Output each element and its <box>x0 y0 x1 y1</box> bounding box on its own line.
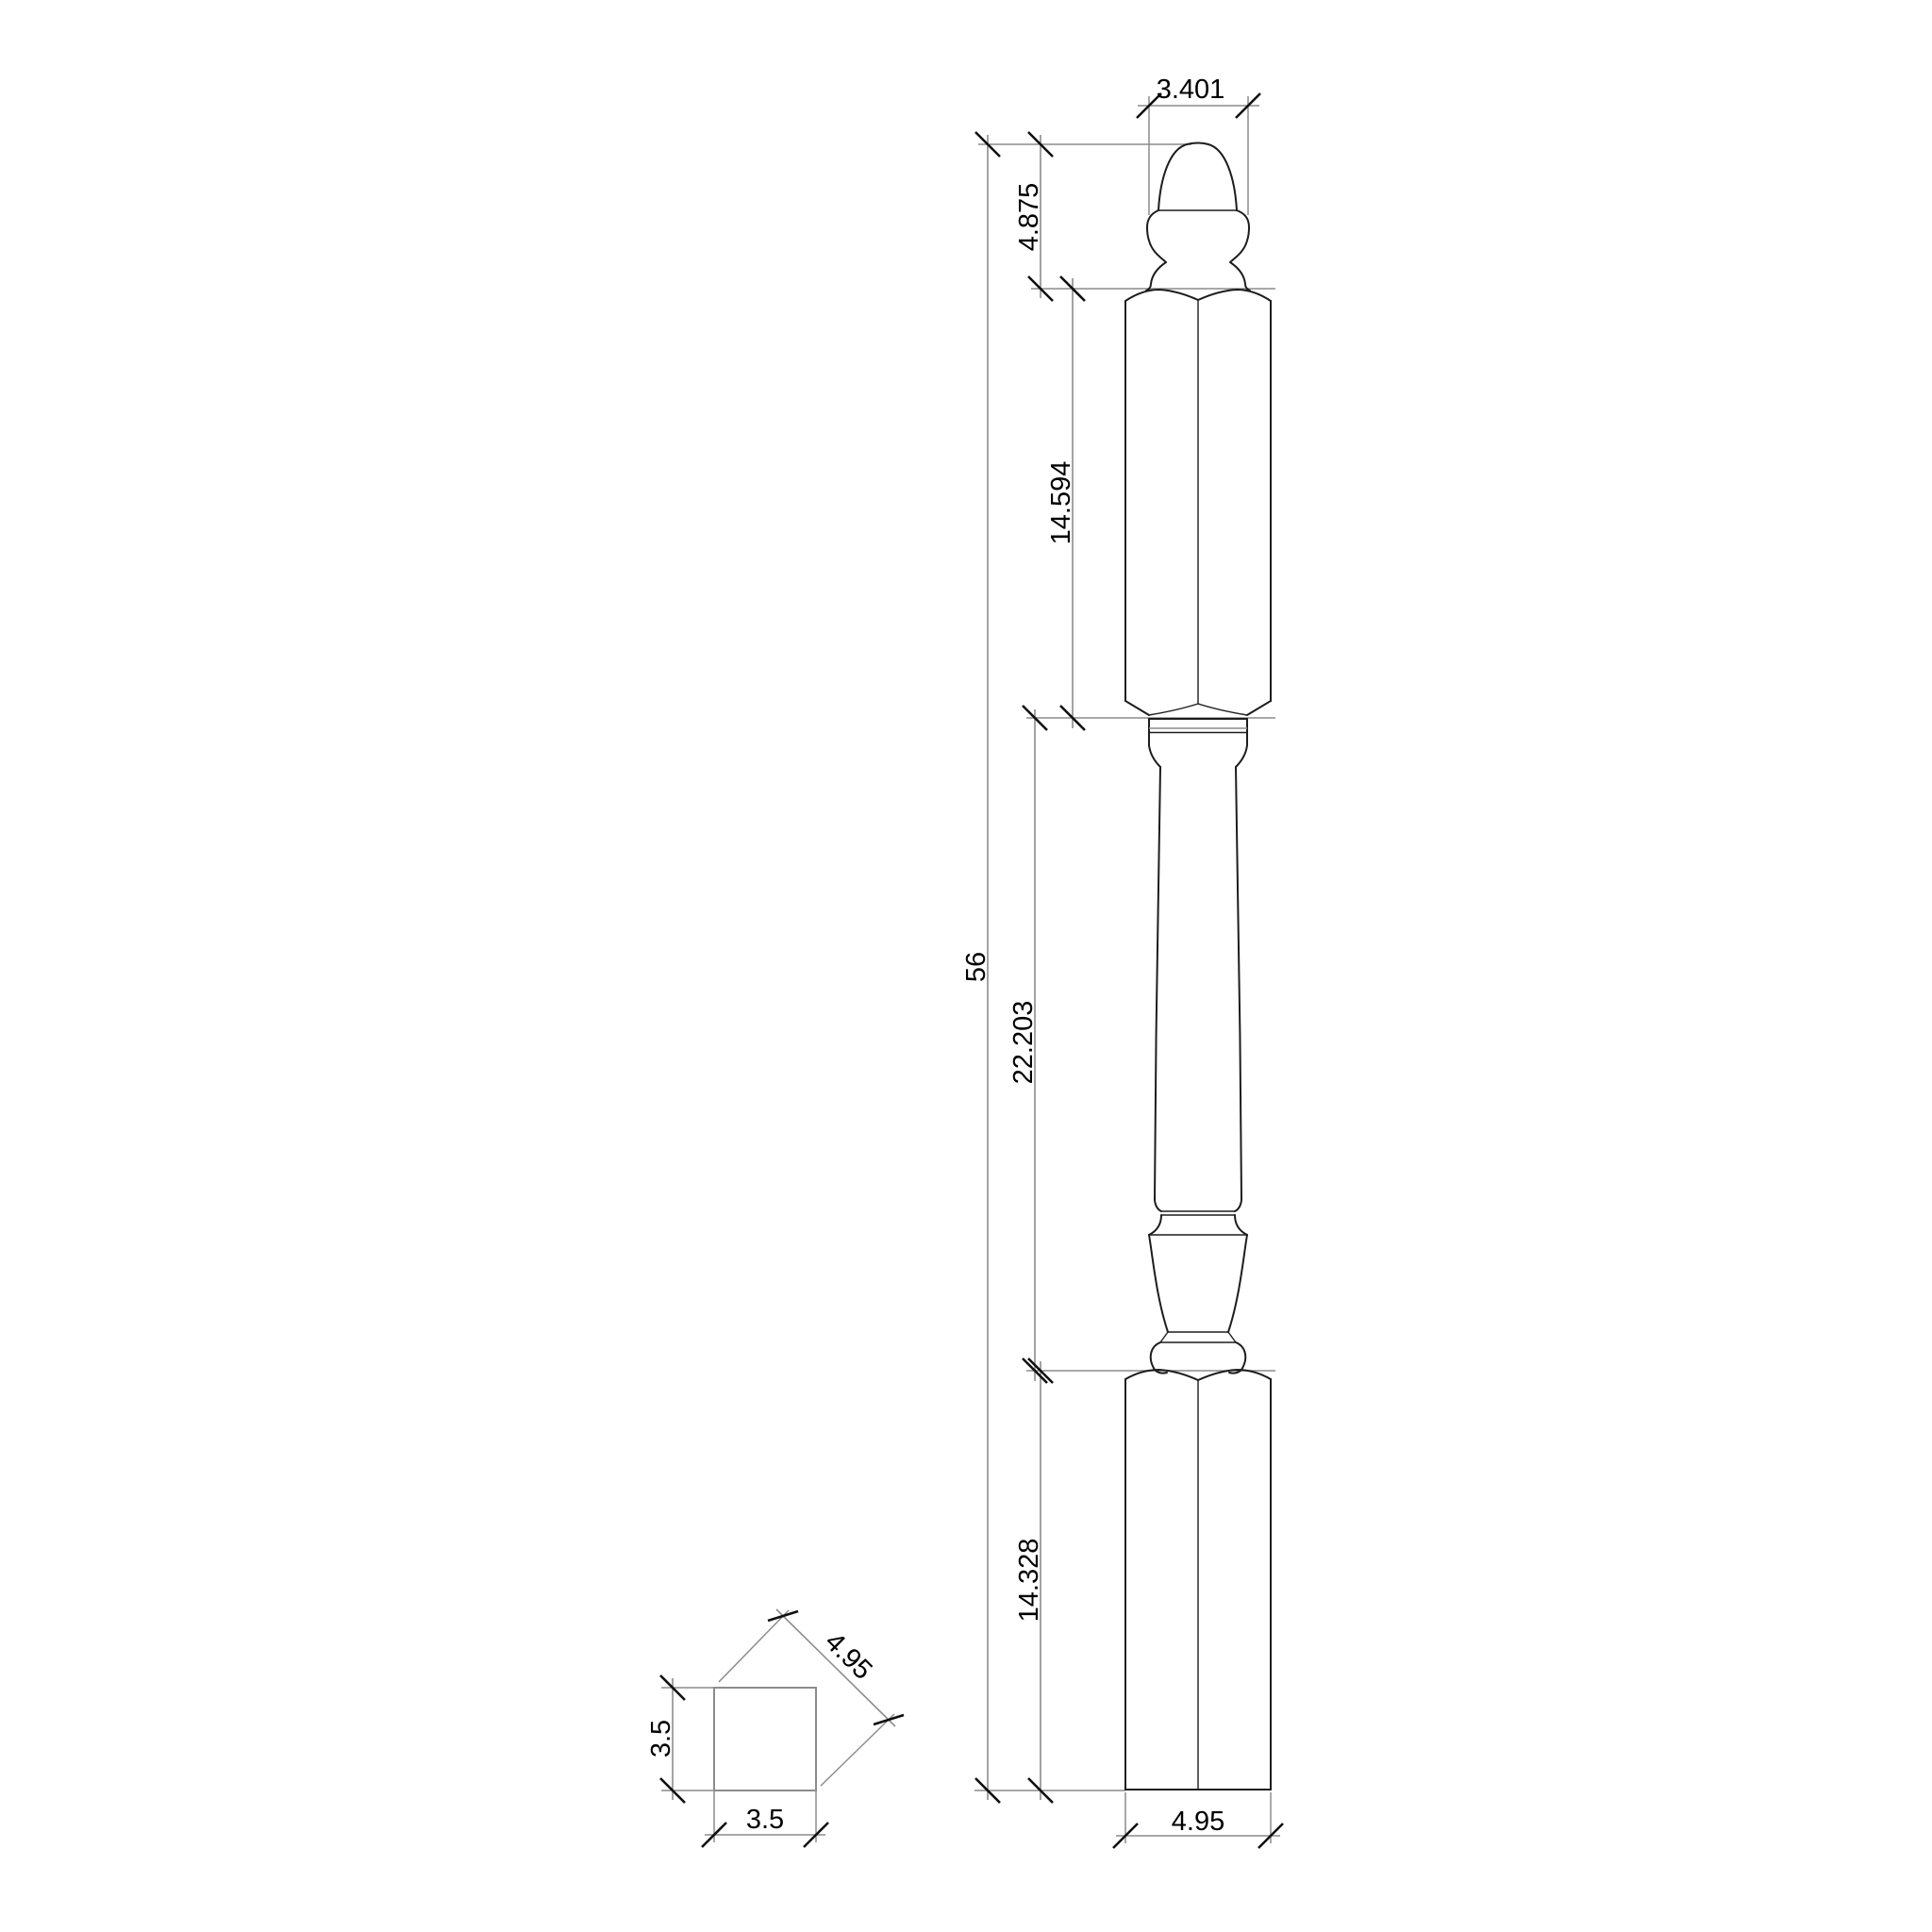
shaft-right <box>1235 767 1241 1211</box>
dim-top-block-height-label: 14.594 <box>1046 461 1076 545</box>
drawing-sheet: 3.401 4.875 14.594 56 22.203 14.328 4.95 <box>0 0 1932 1932</box>
tick-mark <box>874 1715 904 1724</box>
dim-section-diagonal-label: 4.95 <box>819 1626 878 1686</box>
turned-shaft <box>1149 767 1247 1235</box>
collar-ring <box>1149 719 1247 767</box>
vase-turning <box>1149 1235 1247 1374</box>
tick-mark <box>768 1611 798 1621</box>
dim-finial-width-label: 3.401 <box>1157 75 1225 105</box>
vase-left <box>1149 1235 1168 1332</box>
finial-dome <box>1158 143 1237 211</box>
finial-collar-right <box>1230 210 1250 291</box>
dim-section-width-label: 3.5 <box>746 1805 784 1835</box>
bottom-block <box>1125 1370 1271 1790</box>
dimension-labels: 3.401 4.875 14.594 56 22.203 14.328 4.95 <box>961 75 1224 1837</box>
dim-line-section-diagonal <box>776 1609 895 1726</box>
elevation-view: 3.401 4.875 14.594 56 22.203 14.328 4.95 <box>961 75 1283 1848</box>
collar-cove-left <box>1149 745 1160 767</box>
collar-cove-right <box>1236 745 1247 767</box>
extension-line <box>719 1610 789 1682</box>
section-dimension-labels: 3.5 3.5 4.95 <box>646 1626 878 1835</box>
cross-section-square <box>714 1688 816 1790</box>
dim-bottom-block-height-label: 14.328 <box>1014 1539 1044 1623</box>
top-block-bottom-arcs <box>1149 704 1247 715</box>
dim-base-width-label: 4.95 <box>1172 1807 1224 1837</box>
section-dimension-lines <box>673 1609 895 1835</box>
shaft-left <box>1155 767 1161 1211</box>
torus-left <box>1151 1342 1167 1374</box>
section-view: 3.5 3.5 4.95 <box>646 1609 904 1847</box>
dim-section-height-label: 3.5 <box>646 1720 676 1757</box>
vase-waist-fillet <box>1160 1332 1236 1342</box>
top-block-top-arcs <box>1125 290 1271 301</box>
finial-collar-left <box>1146 210 1166 291</box>
dim-overall-height-label: 56 <box>961 952 991 982</box>
shaft-flare-left <box>1149 1215 1161 1235</box>
finial-acorn <box>1146 143 1250 291</box>
top-block <box>1125 290 1271 715</box>
cad-drawing: 3.401 4.875 14.594 56 22.203 14.328 4.95 <box>0 0 1932 1932</box>
torus-right <box>1229 1342 1245 1374</box>
dim-turning-height-label: 22.203 <box>1008 1001 1039 1085</box>
shaft-fillet <box>1161 1211 1235 1215</box>
vase-right <box>1228 1235 1247 1332</box>
dim-finial-height-label: 4.875 <box>1014 183 1044 252</box>
extension-line <box>821 1714 894 1786</box>
shaft-flare-right <box>1235 1215 1247 1235</box>
